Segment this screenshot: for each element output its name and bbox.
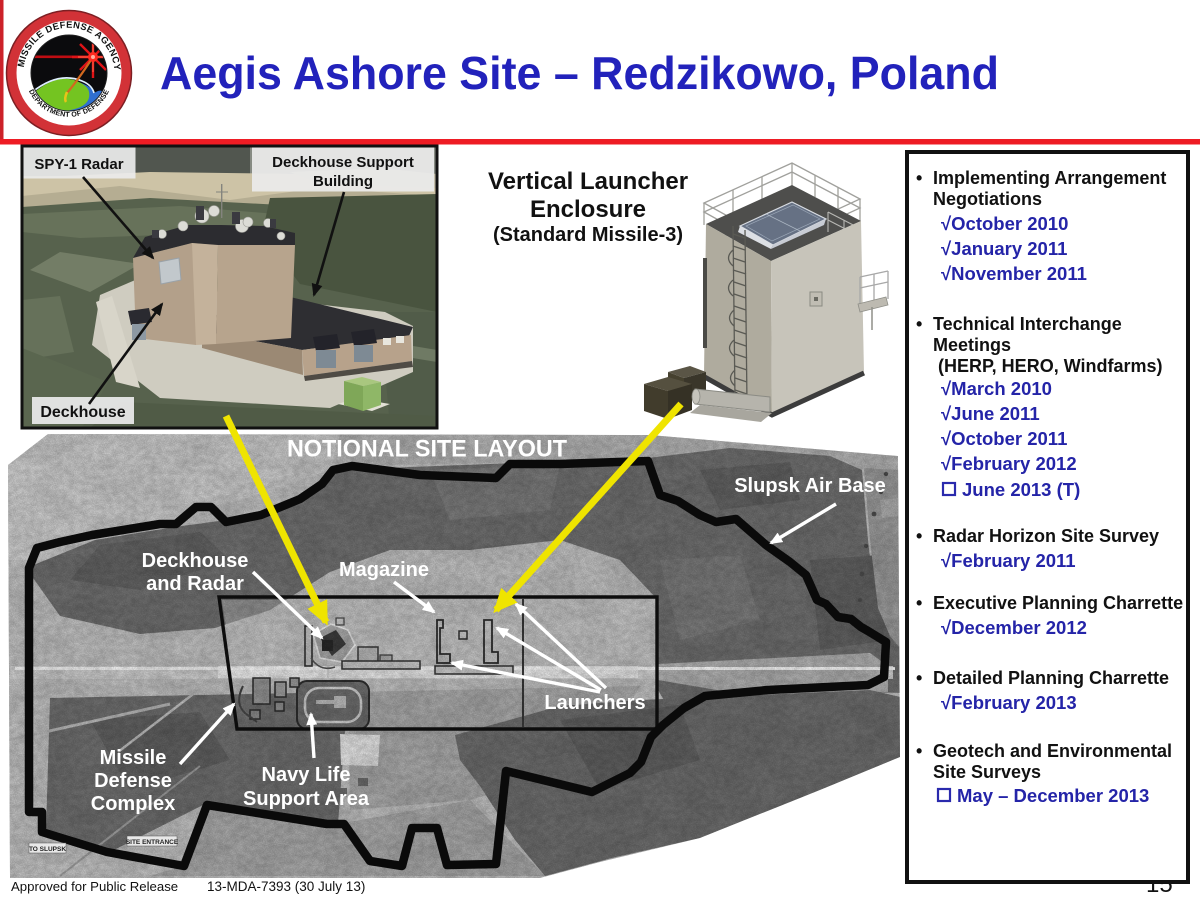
svg-text:•: • [916, 741, 922, 761]
svg-text:TO SLUPSK: TO SLUPSK [29, 846, 66, 853]
svg-text:√January 2011: √January 2011 [941, 238, 1067, 259]
svg-text:Navy Life: Navy Life [262, 764, 351, 786]
svg-text:Approved for Public Release: Approved for Public Release [11, 879, 178, 894]
svg-text:Enclosure: Enclosure [530, 196, 646, 223]
svg-text:Detailed Planning Charrette: Detailed Planning Charrette [933, 668, 1169, 688]
svg-text:√February 2011: √February 2011 [941, 550, 1076, 571]
svg-text:Negotiations: Negotiations [933, 189, 1042, 209]
svg-text:√November 2011: √November 2011 [941, 263, 1087, 284]
svg-text:√October 2010: √October 2010 [941, 213, 1068, 234]
svg-text:13-MDA-7393 (30 July 13): 13-MDA-7393 (30 July 13) [207, 879, 365, 894]
svg-text:Implementing Arrangement: Implementing Arrangement [933, 168, 1166, 188]
svg-text:•: • [916, 668, 922, 688]
svg-text:Geotech and Environmental: Geotech and Environmental [933, 741, 1172, 761]
svg-text:Deckhouse Support: Deckhouse Support [272, 154, 414, 171]
svg-text:Slupsk Air Base: Slupsk Air Base [734, 475, 886, 497]
svg-text:√March 2010: √March 2010 [941, 378, 1052, 399]
svg-text:June 2013 (T): June 2013 (T) [962, 479, 1080, 500]
svg-text:√October 2011: √October 2011 [941, 428, 1067, 449]
svg-text:√June 2011: √June 2011 [941, 403, 1040, 424]
svg-text:Vertical Launcher: Vertical Launcher [488, 168, 688, 195]
svg-text:Aegis Ashore Site – Redzikowo,: Aegis Ashore Site – Redzikowo, Poland [160, 47, 999, 99]
svg-text:Launchers: Launchers [544, 692, 645, 714]
svg-text:Building: Building [313, 173, 373, 190]
svg-text:Executive Planning Charrette: Executive Planning Charrette [933, 593, 1183, 613]
svg-text:Support Area: Support Area [243, 788, 370, 810]
svg-text:Missile: Missile [100, 747, 167, 769]
svg-text:Complex: Complex [91, 793, 175, 815]
svg-text:Deckhouse: Deckhouse [40, 404, 125, 421]
svg-text:May – December 2013: May – December 2013 [957, 785, 1149, 806]
svg-text:Site Surveys: Site Surveys [933, 762, 1041, 782]
svg-text:√February 2013: √February 2013 [941, 692, 1077, 713]
svg-text:•: • [916, 526, 922, 546]
svg-text:SITE ENTRANCE: SITE ENTRANCE [126, 839, 179, 846]
svg-text:NOTIONAL SITE LAYOUT: NOTIONAL SITE LAYOUT [287, 436, 567, 463]
svg-text:Defense: Defense [94, 770, 172, 792]
svg-text:Deckhouse: Deckhouse [142, 550, 249, 572]
svg-text:•: • [916, 168, 922, 188]
svg-text:Radar Horizon Site Survey: Radar Horizon Site Survey [933, 526, 1159, 546]
svg-text:•: • [916, 314, 922, 334]
svg-text:(Standard Missile-3): (Standard Missile-3) [493, 224, 683, 246]
svg-text:SPY-1 Radar: SPY-1 Radar [34, 156, 123, 173]
svg-text:and Radar: and Radar [146, 573, 244, 595]
svg-text:•: • [916, 593, 922, 613]
svg-text:√December 2012: √December 2012 [941, 617, 1087, 638]
svg-text:Magazine: Magazine [339, 559, 429, 581]
svg-text:√February 2012: √February 2012 [941, 453, 1077, 474]
svg-text:Technical Interchange: Technical Interchange [933, 314, 1122, 334]
svg-text:Meetings: Meetings [933, 335, 1011, 355]
svg-text:(HERP, HERO, Windfarms): (HERP, HERO, Windfarms) [938, 356, 1163, 376]
